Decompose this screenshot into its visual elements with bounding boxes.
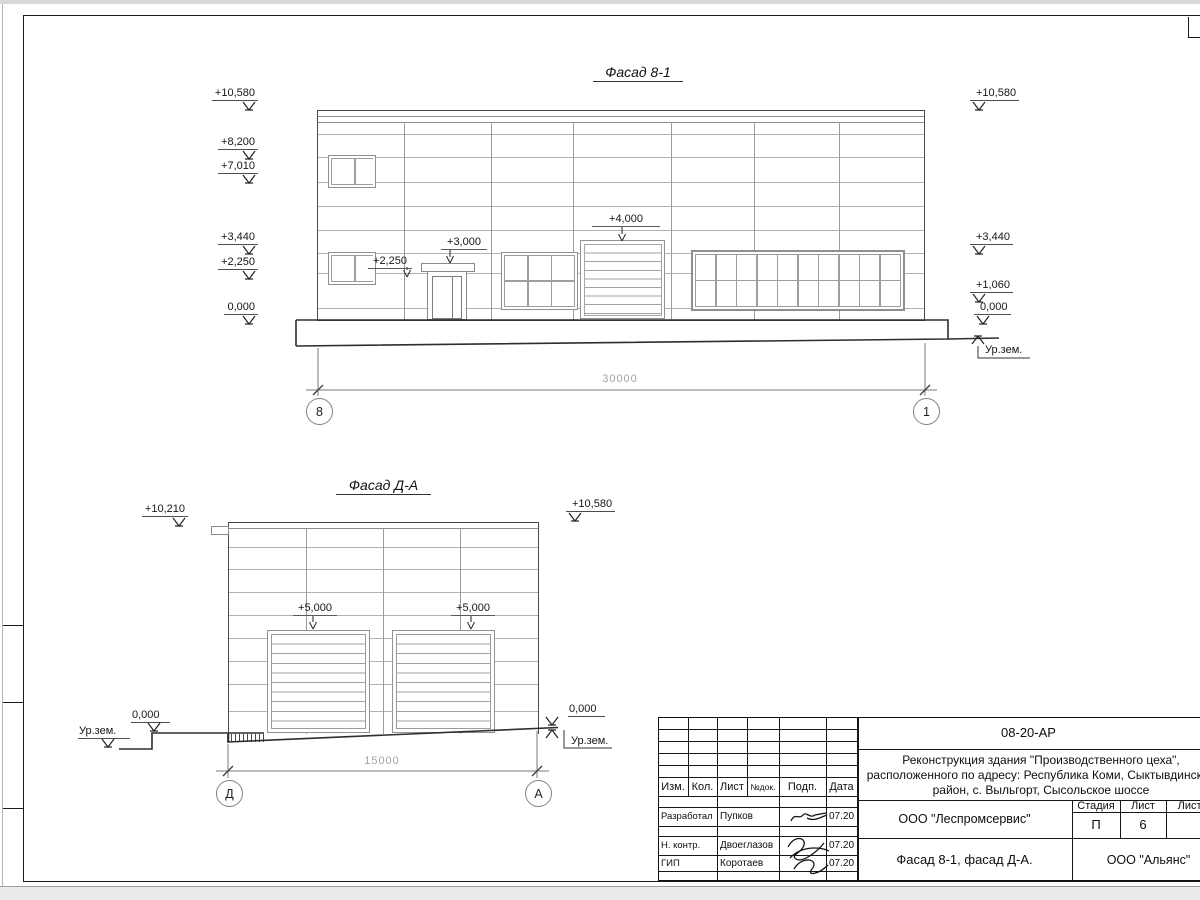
elevation-arrow-down-icon — [172, 517, 186, 527]
elevation-mark: +1,060 — [970, 279, 1013, 303]
background-strip-top — [0, 0, 1200, 4]
column-line — [383, 528, 384, 734]
elevation-arrow-down-icon — [242, 174, 256, 184]
elevation-arrow-down-icon — [242, 315, 256, 325]
col-izm: Изм. — [658, 778, 688, 796]
ground-level-label: Ур.зем. — [571, 735, 608, 747]
elevation-mark: 0,000 — [206, 301, 258, 325]
sheet-left-edge — [2, 4, 3, 886]
project-line3: район, с. Выльгорт, Сысольское шоссе — [859, 783, 1200, 798]
elevation-arrow-down-icon — [972, 101, 986, 111]
col-kol: Кол. — [688, 778, 717, 796]
column-line — [671, 122, 672, 320]
elevation-mark: 0,000 — [974, 301, 1011, 325]
gate-facade1 — [580, 240, 665, 319]
elevation-arrow-down-icon — [242, 150, 256, 160]
elevation-arrow-down-icon — [568, 512, 582, 522]
drawing-title: Фасад 8-1, фасад Д-А. — [857, 838, 1072, 882]
elevation-mark: +7,010 — [206, 160, 258, 184]
mark-5000-left: +5,000 — [293, 602, 337, 616]
sheet-number: 6 — [1120, 812, 1166, 838]
gate-right-facade2 — [392, 630, 495, 733]
window-3x2 — [501, 252, 578, 310]
margin-divider — [3, 808, 23, 809]
row-role: Н. контр. — [661, 837, 716, 855]
dimension-15000: 15000 — [312, 755, 452, 767]
ramp-hatch — [227, 734, 264, 742]
document-code: 08-20-АР — [857, 717, 1200, 749]
elevation-arrow-down-icon — [545, 716, 559, 726]
dimension-30000: 30000 — [550, 373, 690, 385]
facade1-title: Фасад 8-1 — [593, 64, 683, 82]
axis-circle-1: 1 — [913, 398, 940, 425]
mark-2250: +2,250 — [368, 255, 412, 269]
ground-level-label: Ур.зем. — [985, 344, 1022, 356]
elevation-mark: +10,580 — [206, 87, 258, 111]
ground-arrow-up-icon — [971, 335, 985, 345]
signature-icon — [782, 831, 834, 879]
stage-value: П — [1072, 812, 1120, 838]
sheets-label: Листов — [1166, 800, 1200, 812]
elevation-arrow-down-icon — [147, 722, 161, 732]
frame-corner-box — [1188, 17, 1200, 38]
facade2-title: Фасад Д-А — [336, 477, 431, 495]
axis-circle-d: Д — [216, 780, 243, 807]
mark-4000: +4,000 — [592, 213, 660, 227]
ground-arrow-down-icon — [101, 738, 115, 748]
elevation-arrow-down-icon — [976, 315, 990, 325]
zero-level-label: 0,000 — [131, 709, 170, 723]
stage-label: Стадия — [1072, 800, 1120, 812]
elevation-arrow-down-icon — [242, 270, 256, 280]
margin-divider — [3, 702, 23, 703]
elevation-mark: +2,250 — [206, 256, 258, 280]
axis-circle-a: А — [525, 780, 552, 807]
col-podp: Подп. — [779, 778, 826, 796]
row-role: ГИП — [661, 856, 716, 871]
col-data: Дата — [826, 778, 857, 796]
axis-circle-8: 8 — [306, 398, 333, 425]
mark-5000-right: +5,000 — [451, 602, 495, 616]
elevation-mark: +10,580 — [566, 498, 615, 522]
background-strip-bottom — [0, 886, 1200, 900]
elevation-arrow-down-icon — [242, 245, 256, 255]
elevation-mark: +10,210 — [136, 503, 188, 527]
elevation-mark: +3,440 — [206, 231, 258, 255]
mark-3000: +3,000 — [441, 236, 487, 250]
col-list: Лист — [717, 778, 747, 796]
row-name: Двоеглазов — [720, 837, 778, 855]
signature-icon — [788, 809, 830, 825]
organization-2: ООО "Альянс" — [1072, 838, 1200, 882]
ground-level-label: Ур.зем. — [78, 725, 130, 739]
elevation-arrow-down-icon — [972, 245, 986, 255]
elevation-mark: +3,440 — [970, 231, 1013, 255]
row-date: 07.20 — [826, 808, 857, 826]
project-line1: Реконструкция здания "Производственного … — [859, 753, 1200, 768]
organization-1: ООО "Леспромсервис" — [857, 800, 1072, 838]
row-role: Разработал — [661, 808, 716, 826]
ribbon-window — [691, 250, 905, 311]
entrance-door — [427, 271, 467, 320]
elevation-mark: +10,580 — [970, 87, 1019, 111]
project-line2: расположенного по адресу: Республика Ком… — [859, 768, 1200, 783]
margin-divider — [3, 625, 23, 626]
column-line — [404, 122, 405, 320]
canopy-stub — [211, 526, 229, 535]
col-ndok: №док. — [747, 778, 779, 796]
zero-level-label: 0,000 — [568, 703, 605, 717]
gate-left-facade2 — [267, 630, 370, 733]
column-line — [491, 122, 492, 320]
ground-arrow-up-icon — [545, 729, 559, 739]
row-name: Пупков — [720, 808, 778, 826]
drawing-sheet: Фасад 8-1 +10 — [0, 0, 1200, 900]
window-upper-left — [328, 155, 376, 188]
elevation-arrow-down-icon — [242, 101, 256, 111]
sheet-label: Лист — [1120, 800, 1166, 812]
elevation-mark: +8,200 — [206, 136, 258, 160]
row-name: Коротаев — [720, 856, 778, 871]
